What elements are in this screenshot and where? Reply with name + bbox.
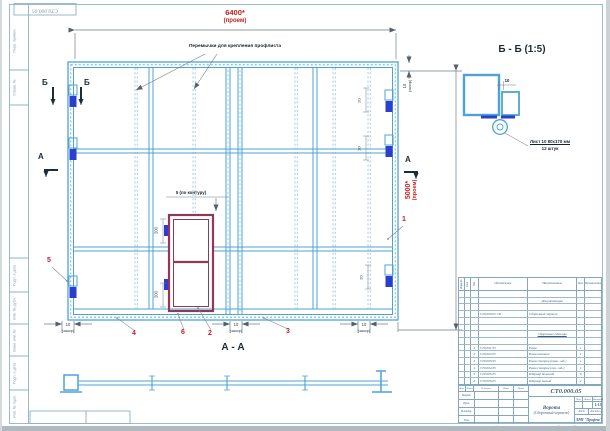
hinge-dim-3: 20 <box>360 267 367 287</box>
door-dim-bottom: 200 <box>155 283 162 307</box>
spec-blank-row <box>459 291 601 298</box>
detail-bb-note-1: Лист 10 80х170 мм <box>506 140 594 145</box>
gap-dim-right-note: (зазор) <box>349 329 379 333</box>
spec-header-name: Наименование <box>528 278 577 290</box>
gap-note: (зазор) <box>408 69 412 103</box>
gate-frame <box>68 62 398 320</box>
balloon-6: 6 <box>178 329 188 337</box>
tb-lit-value <box>575 402 583 409</box>
tb-sig-empty <box>514 400 529 408</box>
dim-opening-height-note: (проем) <box>413 160 419 220</box>
tb-row-razrab: Разраб. <box>459 392 475 400</box>
balloon-2: 2 <box>205 330 215 338</box>
tb-row-prov: Пров. <box>459 400 475 408</box>
spec-header-qty: Кол. <box>577 278 585 290</box>
scan-edge-left <box>0 0 2 431</box>
spec-item-row: 2СТ0.002.05Рама калитки1 <box>459 351 601 358</box>
tb-sig-empty <box>475 408 499 416</box>
spec-header-row: Формат Зона Поз. Обозначение Наименовани… <box>459 278 601 291</box>
tb-sig-empty <box>475 392 499 400</box>
scan-edge-right <box>606 0 610 431</box>
tb-sig-empty <box>514 392 529 400</box>
corner-designation-stamp: СТ0.000.05 <box>14 4 76 16</box>
tb-designation: СТ0.000.05 <box>529 386 603 397</box>
tb-mass-value <box>583 402 593 409</box>
spec-item-row: 5СТ0.005.05Шарнир большой6 <box>459 372 601 379</box>
detail-bb-title: Б - Б (1:5) <box>472 45 572 56</box>
spec-blank-row <box>459 325 601 332</box>
tb-sig-empty <box>499 416 514 424</box>
margin-label-sprav-no: Справ. № <box>14 62 23 112</box>
dim-opening-height: 5000* (проем) <box>405 160 421 220</box>
detail-bb-gap: 10 <box>501 79 513 84</box>
gap-dim-center-value: 10 <box>224 323 248 328</box>
spec-item-row: 6СТ0.006.05Шарнир малый2 <box>459 378 601 384</box>
tb-row-nkontr: Н.контр. <box>459 408 475 416</box>
tb-sig-empty <box>499 408 514 416</box>
spec-item-row: 4СТ0.004.05Рама створки (лев. габ.)1 <box>459 365 601 372</box>
margin-label-inv-podl: Инв. № подл. <box>14 381 23 431</box>
balloon-5: 5 <box>44 257 54 265</box>
dim-opening-width: 6400* <box>195 9 275 17</box>
spec-header-pos: Поз. <box>471 278 479 290</box>
scan-edge-bottom <box>0 426 610 431</box>
wicket-door <box>169 215 213 311</box>
tb-sig-empty <box>475 416 499 424</box>
tb-sheets-value: 1 <box>600 410 601 413</box>
tb-product-name: Ворота (Сборочный чертеж) <box>529 397 575 424</box>
spec-blank-row <box>459 304 601 311</box>
tb-scale-value: 1:15 <box>593 402 603 409</box>
tb-sig-empty <box>499 392 514 400</box>
drawing-sheet: СТ0.000.05 6400* (проем) Перемычки для к… <box>0 0 610 431</box>
detail-bb-note-2: 12 штук <box>506 147 594 152</box>
balloon-1: 1 <box>399 216 409 224</box>
gap-dim-left-note: (зазор) <box>53 329 83 333</box>
detail-bb-geometry <box>464 75 528 146</box>
balloon-3: 3 <box>283 328 293 336</box>
section-marker-b1: Б <box>42 79 48 88</box>
hinge-dim-2: 20 <box>358 138 365 158</box>
tb-product-name-line2: (Сборочный чертеж) <box>534 411 570 415</box>
tb-sig-empty <box>514 408 529 416</box>
gap-dim-center-note: (зазор) <box>221 329 251 333</box>
crossbar-annotation: Перемычки для крепления профлиста <box>176 44 294 49</box>
hinge-marks <box>69 85 393 298</box>
spec-doc-row: СТ0.000.05 СБСборочный чертеж <box>459 311 601 318</box>
spec-blank-row <box>459 318 601 325</box>
specification-table: Формат Зона Поз. Обозначение Наименовани… <box>458 277 602 385</box>
door-dim-top: 200 <box>155 219 162 243</box>
spec-item-row: 1СТ0.001.05Рама1 <box>459 345 601 352</box>
spec-body: Документация СТ0.000.05 СБСборочный черт… <box>459 291 601 384</box>
section-aa-geometry <box>60 371 392 392</box>
gap-dim-left-value: 10 <box>56 323 80 328</box>
dim-opening-width-note: (проем) <box>195 18 275 24</box>
spec-header-designation: Обозначение <box>479 278 528 290</box>
spec-section-docs: Документация <box>459 298 601 305</box>
tb-sig-empty <box>499 400 514 408</box>
spec-item-row: 3СТ0.003.05Рама створки (прав. габ.)1 <box>459 358 601 365</box>
section-marker-b2: Б <box>84 79 90 88</box>
balloon-leaders <box>52 226 403 331</box>
hinge-dim-1: 20 <box>358 90 365 110</box>
tb-sig-empty <box>514 416 529 424</box>
tb-company: ЛРМ "Профекс" <box>575 415 603 424</box>
gap-dim-top-right: 10 (зазор) <box>403 69 415 103</box>
tb-row-utv: Утв. <box>459 416 475 424</box>
tb-sig-empty <box>475 400 499 408</box>
margin-label-perv-primen: Перв. примен. <box>14 15 23 65</box>
door-contour-gap-label: 5 (по контуру) <box>159 191 223 196</box>
spec-blank-row <box>459 338 601 345</box>
dimension-lines <box>44 30 462 333</box>
spec-header-note: Примечание <box>585 278 601 290</box>
balloon-4: 4 <box>129 330 139 338</box>
gap-dim-right-value: 10 <box>352 323 376 328</box>
section-marker-a-left: А <box>38 153 44 162</box>
title-block: Изм. Лист № докум. Подп. Дата Разраб. Пр… <box>458 385 602 423</box>
section-aa-title: А - А <box>203 343 263 354</box>
tb-sheets-label: Листов <box>590 410 599 413</box>
spec-section-units: Сборочные единицы <box>459 331 601 338</box>
